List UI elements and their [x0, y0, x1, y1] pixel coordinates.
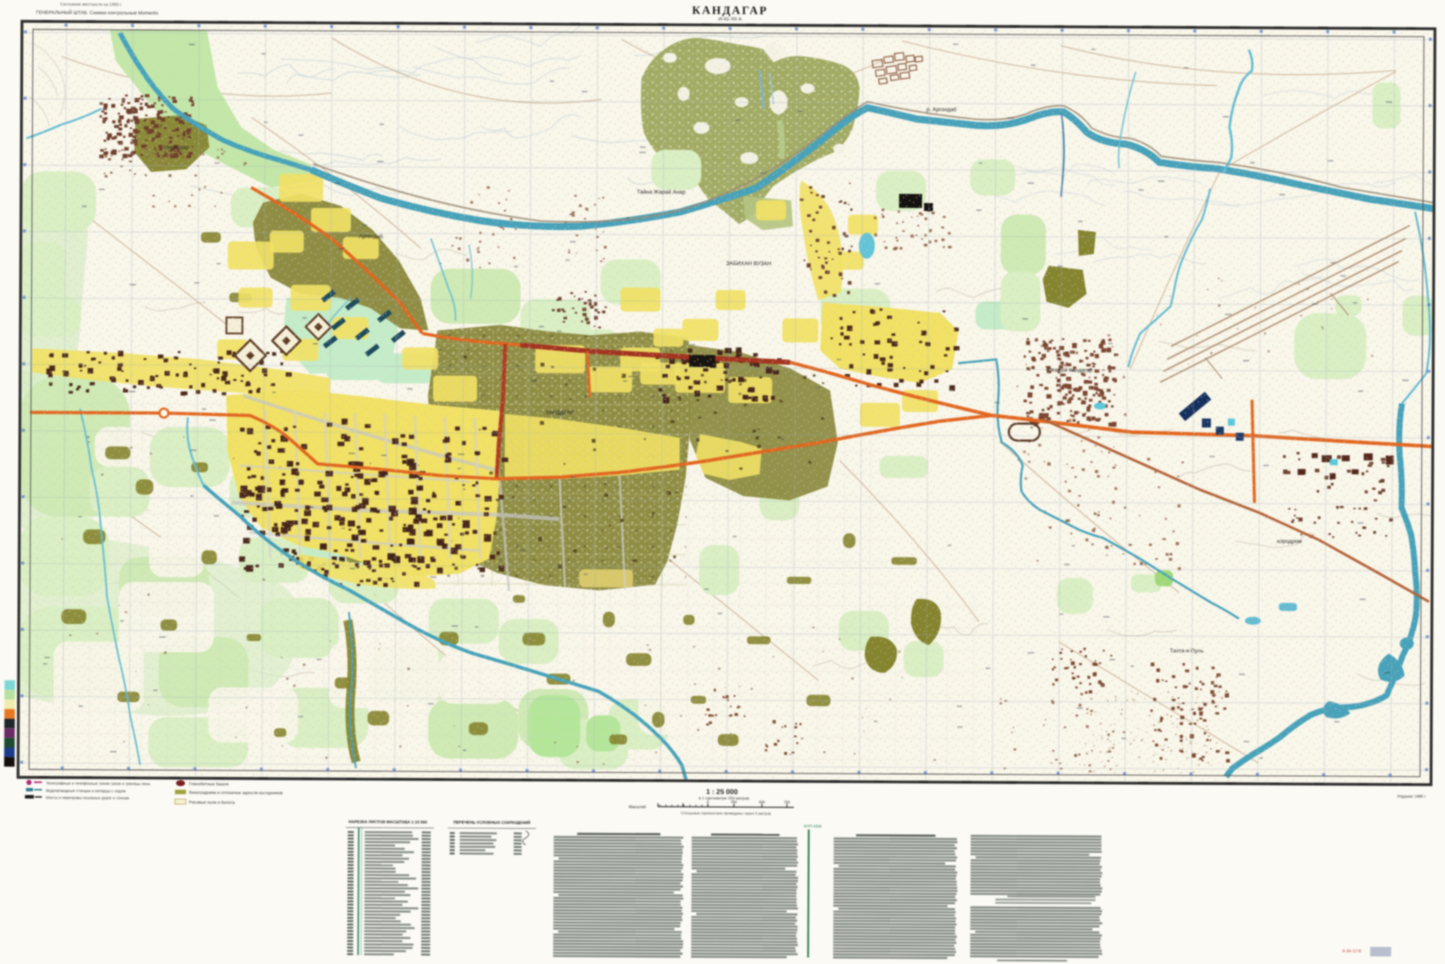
- svg-text:А-34-12-В: А-34-12-В: [1342, 948, 1361, 953]
- svg-text:Издание 1985 г.: Издание 1985 г.: [1397, 794, 1426, 799]
- svg-text:0: 0: [707, 800, 709, 804]
- svg-text:250: 250: [731, 800, 737, 804]
- svg-text:Сплошные горизонтали проведены: Сплошные горизонтали проведены через 5 м…: [681, 811, 771, 815]
- svg-text:500: 500: [759, 800, 765, 804]
- svg-text:Телеграфные и телефонные линии: Телеграфные и телефонные линии связи и г…: [46, 780, 151, 786]
- svg-text:Глинобитные башни: Глинобитные башни: [189, 781, 229, 786]
- svg-text:Водопроводные станции и колодц: Водопроводные станции и колодцы с ходом: [46, 788, 126, 793]
- svg-text:Рисовые поля и болота: Рисовые поля и болота: [189, 800, 235, 805]
- svg-text:750: 750: [784, 800, 790, 804]
- svg-text:И-41-XII А: И-41-XII А: [718, 16, 742, 22]
- svg-text:Состояние местности на 1983 г.: Состояние местности на 1983 г.: [60, 2, 122, 7]
- svg-text:МУП 4336: МУП 4336: [804, 824, 822, 828]
- svg-text:Виноградники и сплошные заросл: Виноградники и сплошные заросли кустарни…: [189, 790, 284, 795]
- svg-text:ПЕРЕЧЕНЬ УСЛОВНЫХ СОКРАЩЕНИЙ: ПЕРЕЧЕНЬ УСЛОВНЫХ СОКРАЩЕНИЙ: [453, 820, 530, 825]
- svg-text:КАНДАГАР: КАНДАГАР: [692, 5, 768, 17]
- svg-text:Мосты и переправы основных дор: Мосты и переправы основных дорог и тонна…: [46, 795, 130, 800]
- svg-text:Масштаб: Масштаб: [629, 804, 647, 809]
- svg-text:НАРЕЗКА ЛИСТОВ МАСШТАБА 1:10 0: НАРЕЗКА ЛИСТОВ МАСШТАБА 1:10 000: [348, 819, 427, 824]
